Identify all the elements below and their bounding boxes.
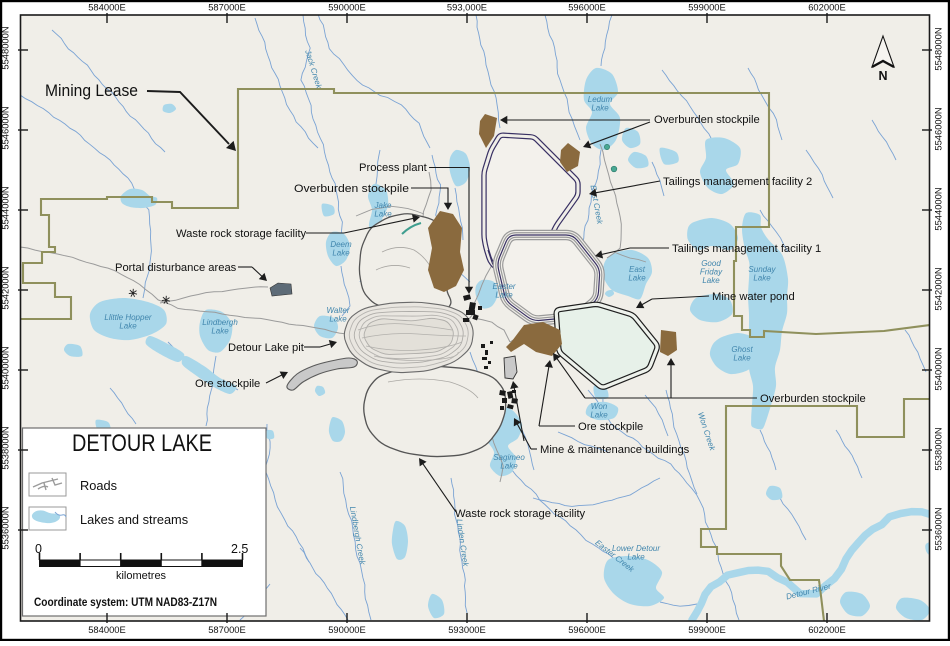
svg-text:5536000N: 5536000N (933, 507, 944, 550)
svg-text:Tailings management facility 1: Tailings management facility 1 (672, 243, 821, 255)
svg-text:GoodFridayLake: GoodFridayLake (700, 259, 723, 285)
svg-text:WalterLake: WalterLake (327, 306, 350, 323)
svg-text:5546000N: 5546000N (0, 106, 11, 149)
svg-text:Mine & maintenance buildings: Mine & maintenance buildings (540, 444, 690, 456)
svg-text:EasterLake: EasterLake (492, 282, 515, 299)
svg-text:5538000N: 5538000N (933, 427, 944, 470)
svg-text:Overburden stockpile: Overburden stockpile (654, 114, 760, 126)
svg-text:5548000N: 5548000N (0, 26, 11, 69)
svg-text:5546000N: 5546000N (933, 107, 944, 150)
svg-text:Tailings management facility 2: Tailings management facility 2 (663, 176, 812, 188)
svg-text:Mining Lease: Mining Lease (45, 81, 138, 100)
svg-text:602000E: 602000E (808, 624, 846, 635)
svg-text:584000E: 584000E (88, 624, 126, 635)
svg-text:2.5: 2.5 (231, 542, 248, 556)
svg-text:593,000E: 593,000E (447, 2, 487, 13)
svg-text:Overburden stockpile: Overburden stockpile (294, 183, 409, 195)
svg-text:N: N (878, 69, 887, 83)
svg-text:5536000N: 5536000N (0, 506, 11, 549)
svg-text:584000E: 584000E (88, 2, 126, 13)
svg-text:602000E: 602000E (808, 2, 846, 13)
svg-text:GhostLake: GhostLake (731, 345, 753, 362)
svg-text:EastLake: EastLake (628, 265, 646, 282)
svg-text:5540000N: 5540000N (0, 346, 11, 389)
svg-text:0: 0 (35, 542, 42, 556)
svg-text:Lakes and streams: Lakes and streams (80, 512, 188, 527)
svg-text:596000E: 596000E (568, 2, 606, 13)
svg-text:Ore stockpile: Ore stockpile (195, 378, 260, 390)
svg-text:587000E: 587000E (208, 2, 246, 13)
svg-text:Coordinate system: UTM NAD83-Z: Coordinate system: UTM NAD83-Z17N (34, 595, 217, 609)
svg-text:Detour Lake pit: Detour Lake pit (228, 342, 305, 354)
svg-text:5542000N: 5542000N (933, 267, 944, 310)
svg-text:Roads: Roads (80, 478, 117, 493)
svg-text:599000E: 599000E (688, 2, 726, 13)
svg-text:DETOUR LAKE: DETOUR LAKE (72, 430, 212, 457)
svg-text:WonLake: WonLake (590, 402, 608, 419)
svg-text:Waste rock storage facility: Waste rock storage facility (455, 508, 586, 520)
svg-text:5548000N: 5548000N (933, 27, 944, 70)
svg-text:590000E: 590000E (328, 2, 366, 13)
svg-text:DeemLake: DeemLake (330, 240, 352, 257)
svg-text:5544000N: 5544000N (933, 187, 944, 230)
svg-text:587000E: 587000E (208, 624, 246, 635)
svg-text:Portal disturbance areas: Portal disturbance areas (115, 262, 237, 274)
svg-text:599000E: 599000E (688, 624, 726, 635)
svg-text:5544000N: 5544000N (0, 186, 11, 229)
svg-text:Ore stockpile: Ore stockpile (578, 421, 643, 433)
svg-text:Process plant: Process plant (359, 162, 428, 174)
svg-text:Overburden stockpile: Overburden stockpile (760, 393, 866, 405)
svg-text:JakeLake: JakeLake (374, 201, 393, 218)
svg-text:kilometres: kilometres (116, 570, 167, 582)
svg-text:5540000N: 5540000N (933, 347, 944, 390)
svg-text:596000E: 596000E (568, 624, 606, 635)
svg-text:590000E: 590000E (328, 624, 366, 635)
svg-text:5542000N: 5542000N (0, 266, 11, 309)
svg-text:5538000N: 5538000N (0, 426, 11, 469)
svg-text:Waste rock storage facility: Waste rock storage facility (176, 228, 307, 240)
svg-text:Mine water pond: Mine water pond (712, 291, 795, 303)
svg-text:593000E: 593000E (448, 624, 486, 635)
